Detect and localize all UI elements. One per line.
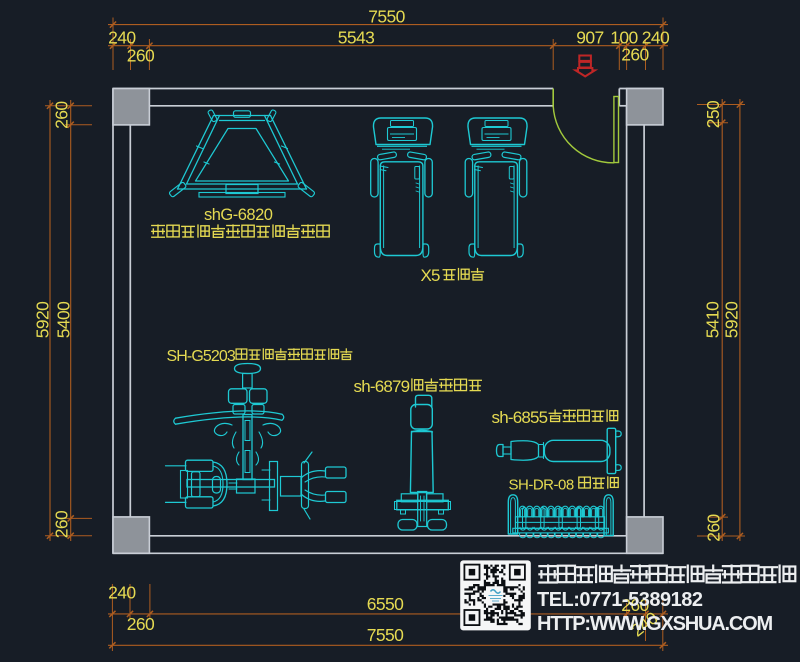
svg-text:SH-DR-08: SH-DR-08 bbox=[509, 477, 574, 494]
svg-text:sh-6879: sh-6879 bbox=[354, 377, 410, 396]
svg-text:5400: 5400 bbox=[53, 301, 73, 338]
svg-text:260: 260 bbox=[127, 614, 155, 634]
svg-text:6550: 6550 bbox=[367, 594, 404, 614]
svg-text:260: 260 bbox=[704, 513, 724, 541]
svg-text:250: 250 bbox=[703, 100, 723, 128]
svg-text:sh-6855: sh-6855 bbox=[492, 408, 548, 427]
svg-text:260: 260 bbox=[52, 101, 72, 129]
svg-text:260: 260 bbox=[127, 46, 155, 66]
svg-text:260: 260 bbox=[621, 45, 649, 65]
svg-text:260: 260 bbox=[52, 510, 72, 538]
svg-text:7550: 7550 bbox=[367, 625, 404, 645]
svg-text:X5: X5 bbox=[421, 266, 441, 285]
svg-text:240: 240 bbox=[108, 583, 136, 603]
svg-text:907: 907 bbox=[576, 28, 603, 48]
svg-text:5920: 5920 bbox=[33, 301, 53, 338]
svg-text:5543: 5543 bbox=[338, 28, 375, 48]
svg-text:5920: 5920 bbox=[721, 301, 741, 338]
svg-text:TEL:0771-5389182: TEL:0771-5389182 bbox=[537, 589, 703, 611]
svg-text:7550: 7550 bbox=[368, 7, 405, 27]
svg-text:HTTP:WWW.GXSHUA.COM: HTTP:WWW.GXSHUA.COM bbox=[537, 613, 772, 635]
svg-text:240: 240 bbox=[108, 28, 136, 48]
svg-text:SH-G5203: SH-G5203 bbox=[167, 348, 236, 365]
svg-text:5410: 5410 bbox=[703, 301, 723, 338]
svg-text:shG-6820: shG-6820 bbox=[204, 206, 273, 224]
